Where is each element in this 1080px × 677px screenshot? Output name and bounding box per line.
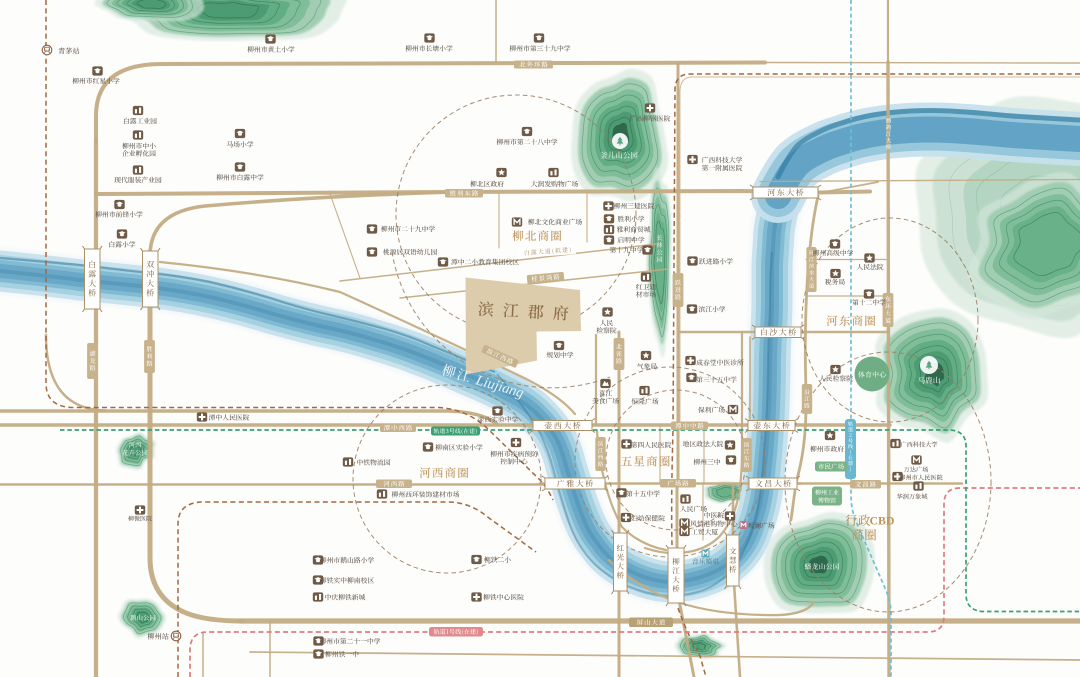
svg-text:CBD: CBD [870,514,895,528]
